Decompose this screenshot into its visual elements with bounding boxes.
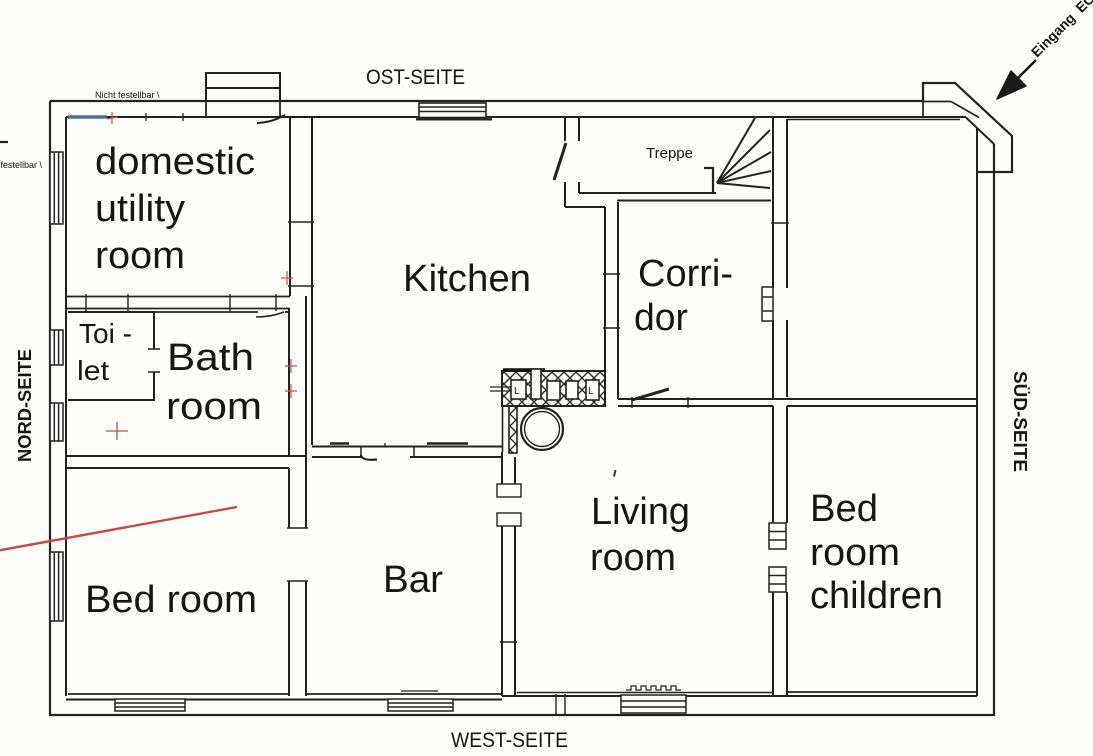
svg-text:dor: dor (634, 297, 688, 339)
svg-text:Eingang EG: Eingang EG (1028, 0, 1093, 60)
svg-text:OST-SEITE: OST-SEITE (366, 65, 465, 89)
svg-text:domestic: domestic (95, 141, 255, 183)
svg-text:WEST-SEITE: WEST-SEITE (451, 728, 568, 752)
svg-text:L: L (514, 386, 520, 397)
svg-text:Kitchen: Kitchen (403, 258, 531, 300)
svg-text:room: room (810, 532, 900, 574)
svg-text:Toi -: Toi - (79, 318, 132, 349)
svg-text:cht festellbar \: cht festellbar \ (0, 160, 43, 170)
svg-text:SÜD-SEITE: SÜD-SEITE (1010, 371, 1030, 472)
svg-text:let: let (77, 355, 109, 386)
svg-text:Bar: Bar (383, 559, 443, 601)
svg-text:NORD-SEITE: NORD-SEITE (15, 349, 35, 462)
svg-text:Bath: Bath (167, 337, 254, 379)
svg-text:Treppe: Treppe (646, 145, 693, 162)
svg-text:Bed: Bed (810, 488, 878, 530)
svg-text:Nicht festellbar \: Nicht festellbar \ (95, 90, 160, 100)
svg-text:utility: utility (95, 188, 185, 230)
svg-text:room: room (590, 537, 676, 579)
svg-text:L: L (588, 386, 594, 397)
svg-text:children: children (810, 575, 943, 617)
svg-text:room: room (166, 386, 262, 428)
svg-text:Bed room: Bed room (85, 579, 257, 621)
svg-text:Corri-: Corri- (638, 253, 733, 295)
svg-text:room: room (95, 235, 185, 277)
svg-text:Living: Living (591, 491, 690, 533)
